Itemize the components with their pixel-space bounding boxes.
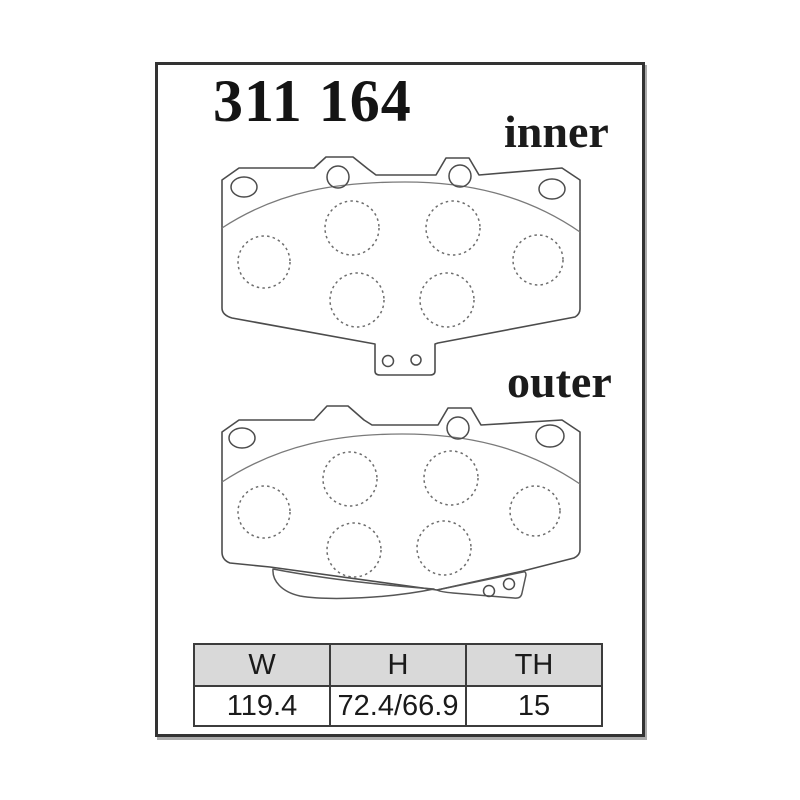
inner-tab-holes xyxy=(383,355,422,367)
outer-corner-holes xyxy=(229,425,564,448)
backing-plate-outline xyxy=(222,157,580,375)
friction-material-edge xyxy=(222,434,580,484)
corner-hole-right xyxy=(536,425,564,447)
value-h: 72.4/66.9 xyxy=(330,686,466,726)
col-header-w: W xyxy=(194,644,330,686)
outer-backing-plate xyxy=(222,406,580,590)
tab-hole-right xyxy=(504,579,515,590)
inner-friction-circles xyxy=(238,201,563,327)
table-header-row: W H TH xyxy=(194,644,602,686)
dimensions-table: W H TH 119.4 72.4/66.9 15 xyxy=(193,643,603,727)
value-th: 15 xyxy=(466,686,602,726)
inner-backing-plate xyxy=(222,157,580,375)
diagram-frame: 311 164 inner outer xyxy=(155,62,645,737)
lug-hole-right xyxy=(447,417,469,439)
wear-indicator-shim xyxy=(273,569,434,598)
friction-circle xyxy=(424,451,478,505)
corner-hole-right xyxy=(539,179,565,199)
lug-hole-left xyxy=(327,166,349,188)
part-number: 311 164 xyxy=(213,67,412,136)
friction-circle xyxy=(510,486,560,536)
tab-hole-left xyxy=(484,586,495,597)
friction-circle xyxy=(426,201,480,255)
bottom-right-tab xyxy=(437,572,526,598)
friction-circle xyxy=(513,235,563,285)
outer-pad-drawing xyxy=(210,400,590,615)
lug-hole-right xyxy=(449,165,471,187)
inner-corner-holes xyxy=(231,177,565,199)
friction-circle xyxy=(323,452,377,506)
friction-circle xyxy=(327,523,381,577)
inner-label: inner xyxy=(504,109,609,155)
friction-material-edge xyxy=(222,182,580,232)
value-w: 119.4 xyxy=(194,686,330,726)
friction-circle xyxy=(325,201,379,255)
corner-hole-left xyxy=(231,177,257,197)
tab-hole-left xyxy=(383,356,394,367)
col-header-h: H xyxy=(330,644,466,686)
outer-lug-holes xyxy=(447,417,469,439)
tab-hole-right xyxy=(411,355,421,365)
col-header-th: TH xyxy=(466,644,602,686)
friction-circle xyxy=(238,486,290,538)
outer-label: outer xyxy=(507,359,612,405)
friction-circle xyxy=(238,236,290,288)
friction-circle xyxy=(417,521,471,575)
table-value-row: 119.4 72.4/66.9 15 xyxy=(194,686,602,726)
corner-hole-left xyxy=(229,428,255,448)
friction-circle xyxy=(330,273,384,327)
outer-friction-circles xyxy=(238,451,560,577)
friction-circle xyxy=(420,273,474,327)
